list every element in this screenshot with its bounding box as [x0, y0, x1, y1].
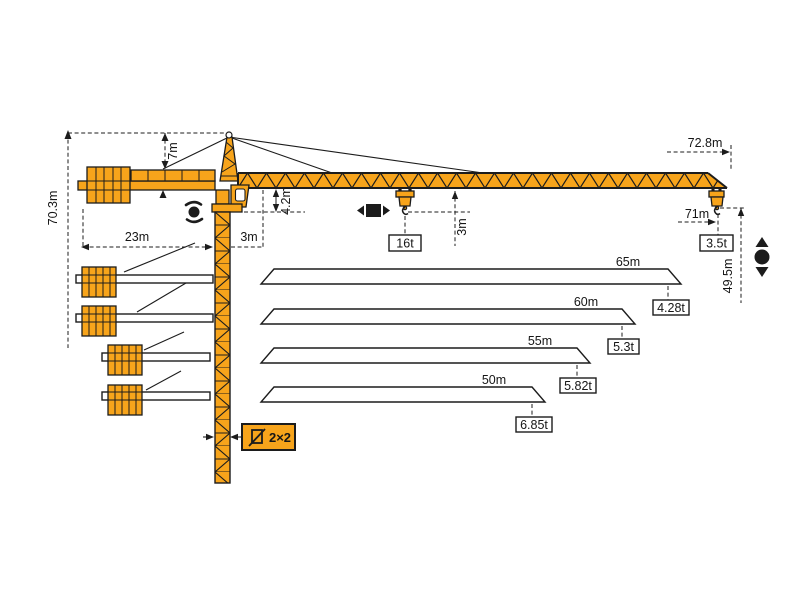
dim-jib-length-overall: 72.8m: [688, 136, 723, 150]
jib-variant-bar-65m: [261, 269, 681, 284]
variant-capacity-60m: 5.3t: [613, 340, 634, 354]
max-capacity-badge: 16t: [389, 235, 421, 251]
tip-hook: [709, 188, 724, 214]
tie-rods: [163, 137, 483, 174]
dim-counter-jib-radius: 23m: [125, 230, 149, 244]
variant-length-65m: 65m: [616, 255, 640, 269]
variant-capacity-badge-50m: 6.85t: [516, 417, 552, 432]
counterweight-config-3: [102, 332, 210, 375]
hoisting-icon: [755, 237, 770, 277]
tip-capacity-badge: 3.5t: [700, 235, 733, 251]
tower-mast: [215, 212, 230, 483]
variant-length-60m: 60m: [574, 295, 598, 309]
variant-capacity-65m: 4.28t: [657, 301, 685, 315]
counter-jib: [78, 167, 215, 203]
dim-min-hook-offset: 3m: [455, 218, 469, 235]
counterweight-config-1: [76, 243, 213, 297]
max-capacity-label: 16t: [396, 237, 414, 251]
dim-total-height: 70.3m: [46, 191, 60, 226]
main-jib: [238, 173, 727, 188]
jib-variant-bar-55m: [261, 348, 590, 363]
variant-length-55m: 55m: [528, 334, 552, 348]
tip-capacity-label: 3.5t: [706, 237, 727, 251]
trolley-hook: [396, 188, 414, 214]
variant-capacity-badge-60m: 5.3t: [608, 339, 639, 354]
crane-diagram-svg: 2×2 16t 3.5t 4.28t 5.3t 5.82t 6.85t 70.3…: [0, 0, 800, 600]
trolley-travel-icon: [357, 204, 390, 217]
variant-capacity-50m: 6.85t: [520, 418, 548, 432]
cab-window: [236, 189, 246, 201]
mast-section-badge: 2×2: [242, 424, 295, 450]
mast-top-section: [216, 190, 229, 204]
mast-section-label: 2×2: [269, 430, 291, 445]
dim-max-radius: 71m: [685, 207, 709, 221]
dim-rear-offset: 3m: [240, 230, 257, 244]
slewing-unit: [212, 204, 242, 212]
variant-length-50m: 50m: [482, 373, 506, 387]
dim-hook-height: 49.5m: [721, 259, 735, 294]
counterweight-config-4: [102, 371, 210, 415]
slewing-icon: [186, 202, 202, 222]
crane-diagram: 2×2 16t 3.5t 4.28t 5.3t 5.82t 6.85t 70.3…: [0, 0, 800, 600]
jib-variant-bar-50m: [261, 387, 545, 402]
variant-capacity-badge-55m: 5.82t: [560, 378, 596, 393]
variant-capacity-55m: 5.82t: [564, 379, 592, 393]
jib-variant-bar-60m: [261, 309, 635, 324]
variant-capacity-badge-65m: 4.28t: [653, 300, 689, 315]
dim-head-height: 7m: [166, 142, 180, 159]
apex-pulley: [226, 132, 232, 138]
counterweight-block: [87, 167, 130, 203]
dim-clearance-under-jib: 4.2m: [279, 187, 293, 215]
